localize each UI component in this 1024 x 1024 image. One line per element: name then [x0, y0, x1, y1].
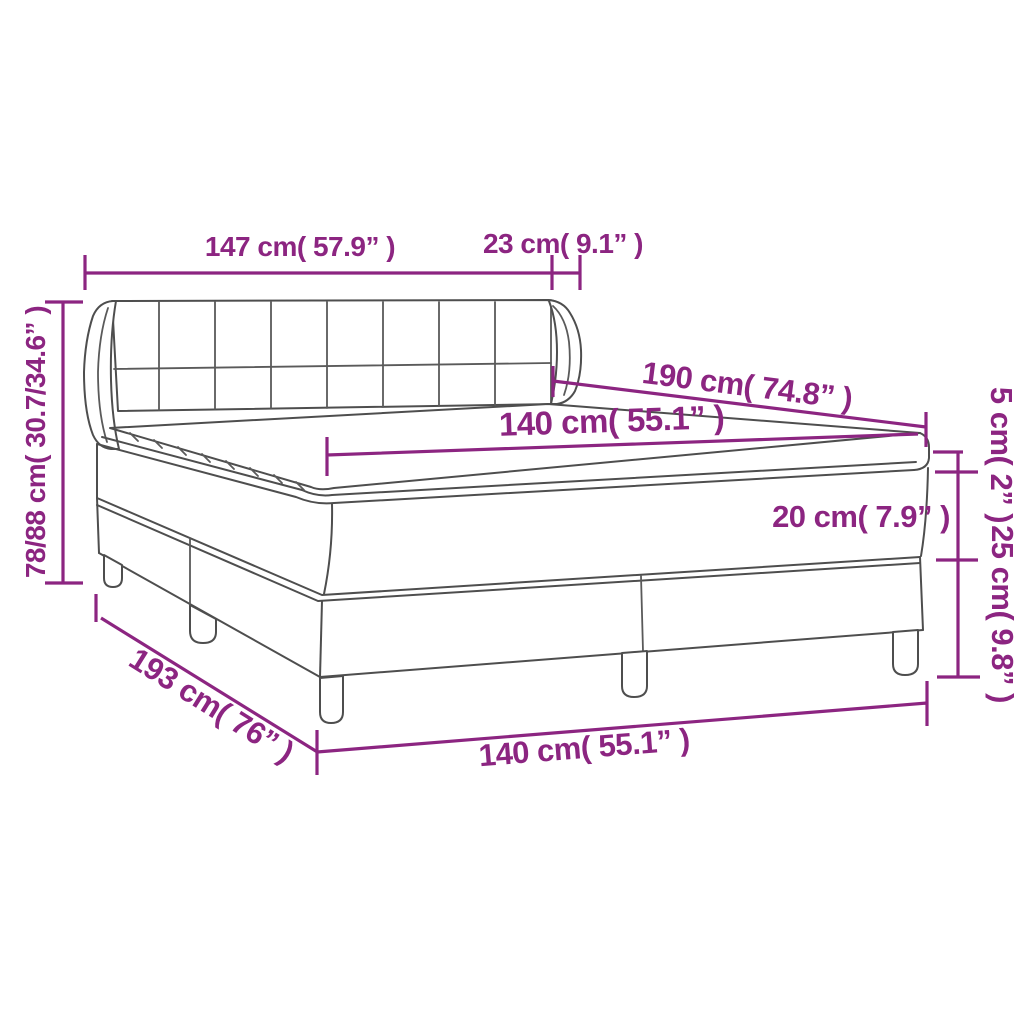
dim-frame-width: 140 cm( 55.1” ) — [317, 681, 927, 775]
base-near-corner-edge — [320, 601, 322, 677]
label-mattress-width: 140 cm( 55.1” ) — [498, 398, 725, 443]
bed-dimension-drawing: 147 cm( 57.9” ) 23 cm( 9.1” ) 78/88 cm( … — [0, 0, 1024, 1024]
bed-leg-front-right — [893, 630, 918, 675]
dimension-diagram: 147 cm( 57.9” ) 23 cm( 9.1” ) 78/88 cm( … — [0, 0, 1024, 1024]
bed-leg-back-left — [104, 555, 122, 587]
dim-line-right-heights — [933, 452, 980, 677]
headboard-panel — [112, 300, 580, 411]
mattress-near-corner-edge — [324, 504, 332, 594]
base-front-face-seam — [641, 576, 643, 651]
label-headboard-side-depth: 23 cm( 9.1” ) — [483, 228, 643, 259]
label-frame-width: 140 cm( 55.1” ) — [477, 722, 690, 773]
dim-headboard-width: 147 cm( 57.9” ) 23 cm( 9.1” ) — [85, 228, 643, 290]
label-base-height: 25 cm( 9.8” ) — [985, 525, 1020, 703]
bed-leg-front-corner — [320, 676, 343, 723]
bed-leg-front-middle — [622, 651, 647, 697]
label-topper-thickness: 5 cm( 2” ) — [984, 387, 1019, 523]
label-headboard-width: 147 cm( 57.9” ) — [205, 231, 395, 262]
label-mattress-thickness: 20 cm( 7.9” ) — [772, 499, 950, 534]
label-frame-length: 193 cm( 76” ) — [123, 641, 300, 770]
label-total-height: 78/88 cm( 30.7/34.6” ) — [20, 306, 51, 578]
base-right-edge — [920, 557, 923, 630]
dim-total-height: 78/88 cm( 30.7/34.6” ) — [20, 302, 83, 583]
